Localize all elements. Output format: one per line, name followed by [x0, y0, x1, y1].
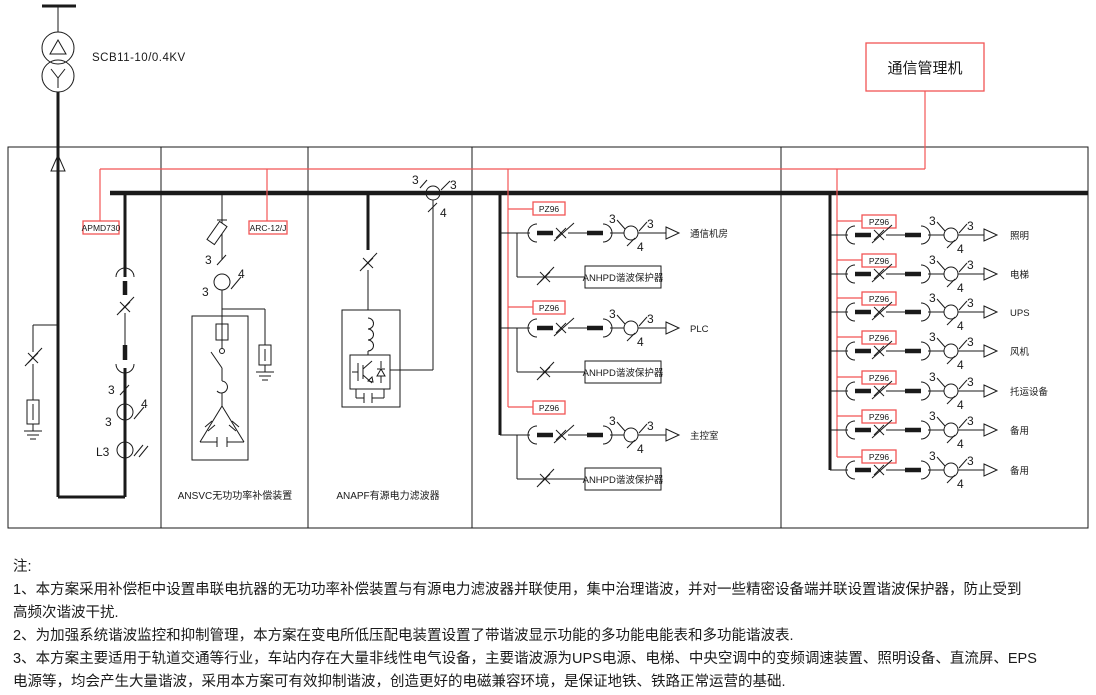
- one-line-diagram: 3 3 4 3 3 4: [0, 0, 1096, 695]
- pz96-label: PZ96: [869, 294, 890, 304]
- bus-ct: 3 3 4: [412, 173, 457, 220]
- reactor-icon: [217, 381, 227, 393]
- pz96-label: PZ96: [869, 217, 890, 227]
- anhpd-label: ANHPD谐波保护器: [583, 367, 664, 379]
- transformer: SCB11-10/0.4KV: [42, 6, 186, 92]
- note-line: 1、本方案采用补偿柜中设置串联电抗器的无功功率补偿装置与有源电力滤波器并联使用，…: [13, 580, 1022, 598]
- notes: 注: 1、本方案采用补偿柜中设置串联电抗器的无功功率补偿装置与有源电力滤波器并联…: [13, 558, 1037, 690]
- notes-title: 注:: [13, 558, 32, 575]
- ct-wire-top: 3: [450, 178, 457, 192]
- ground-icon: [24, 431, 42, 439]
- load-arrow-icon: [984, 464, 997, 476]
- feeder-load-label: 托运设备: [1010, 386, 1049, 398]
- l3-label: L3: [96, 445, 110, 459]
- feeder-load-label: 备用: [1010, 425, 1029, 437]
- ct-phase-count: 3: [412, 173, 419, 187]
- wye-winding-icon: [51, 69, 65, 88]
- load-arrow-icon: [984, 424, 997, 436]
- pz96-label: PZ96: [539, 204, 560, 214]
- feeder-load-label: 主控室: [690, 430, 719, 442]
- pz96-label: PZ96: [539, 403, 560, 413]
- pz96-label: PZ96: [539, 303, 560, 313]
- feeder-load-label: UPS: [1010, 308, 1030, 319]
- load-arrow-icon: [984, 385, 997, 397]
- load-arrow-icon: [984, 268, 997, 280]
- pz96-label: PZ96: [869, 373, 890, 383]
- pz96-label: PZ96: [869, 333, 890, 343]
- feeder-load-label: 风机: [1010, 346, 1030, 358]
- panel-incoming: APMD730 L3: [24, 193, 148, 497]
- note-line: 电源等，均会产生大量谐波，采用本方案可有效抑制谐波，创造更好的电磁兼容环境，是保…: [13, 672, 786, 690]
- transformer-label: SCB11-10/0.4KV: [92, 52, 186, 64]
- panel-anapf: 3 3 4 ANAPF有源电力滤波器: [336, 173, 457, 502]
- l3-harmonic-meter: L3: [96, 442, 148, 459]
- load-arrow-icon: [984, 306, 997, 318]
- surge-arrester-branch: [24, 325, 58, 439]
- panel-ansvc: ARC-12/J: [178, 193, 292, 502]
- fuse-icon: [207, 221, 227, 244]
- load-arrow-icon: [666, 322, 679, 334]
- pz96-label: PZ96: [869, 256, 890, 266]
- feeder-load-label: 照明: [1010, 231, 1029, 242]
- anapf-panel-label: ANAPF有源电力滤波器: [336, 489, 439, 502]
- pz96-label: PZ96: [869, 452, 890, 462]
- ct-wire-bottom: 4: [440, 206, 447, 220]
- igbt-symbol-icon: [352, 361, 385, 383]
- feeder-load-label: 备用: [1010, 465, 1029, 477]
- apmd730-label: APMD730: [82, 223, 121, 233]
- feeder-load-label: PLC: [690, 324, 709, 335]
- load-arrow-icon: [666, 429, 679, 441]
- anhpd-label: ANHPD谐波保护器: [583, 272, 664, 284]
- pz96-label: PZ96: [869, 412, 890, 422]
- load-arrow-icon: [984, 345, 997, 357]
- panel-feeders-right: PZ96 照明 PZ96 电梯 PZ96 UPS PZ96 风机: [830, 193, 1049, 491]
- comm-network: 通信管理机: [100, 43, 984, 457]
- ansvc-panel-label: ANSVC无功功率补偿装置: [178, 489, 292, 502]
- load-arrow-icon: [666, 227, 679, 239]
- ground-icon: [256, 372, 274, 380]
- anhpd-label: ANHPD谐波保护器: [583, 474, 664, 486]
- apf-equipment-box: [342, 310, 400, 407]
- comm-manager-label: 通信管理机: [887, 60, 962, 77]
- note-line: 2、为加强系统谐波监控和抑制管理，本方案在变电所低压配电装置设置了带谐波显示功能…: [13, 626, 794, 644]
- contactor-blade: [211, 352, 222, 368]
- note-line: 高频次谐波干扰.: [13, 604, 119, 621]
- load-arrow-icon: [984, 229, 997, 241]
- panel-feeders-mid: PZ96 通信机房 ANHPD谐波保护器 PZ96 PLC ANHPD谐波保护器…: [500, 193, 728, 490]
- delta-winding-icon: [50, 40, 66, 54]
- note-line: 3、本方案主要适用于轨道交通等行业，车站内存在大量非线性电气设备，主要谐波源为U…: [13, 649, 1037, 667]
- delta-capacitor-icon: [200, 406, 244, 447]
- feeder-load-label: 通信机房: [690, 228, 728, 240]
- dc-link-capacitor-icon: [356, 389, 384, 403]
- reactor-icon: [368, 318, 374, 351]
- incoming-riser: [51, 92, 125, 497]
- arc12j-label: ARC-12/J: [250, 223, 287, 233]
- feeder-load-label: 电梯: [1010, 269, 1030, 281]
